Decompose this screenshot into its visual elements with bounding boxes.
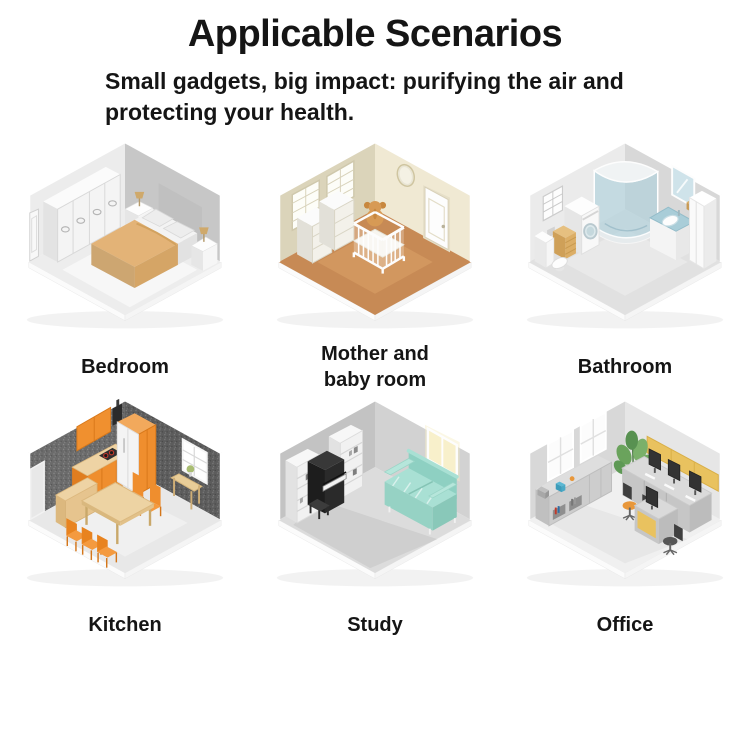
scenario-study: Study	[250, 395, 500, 653]
laundry-basket	[553, 226, 576, 260]
room-label-kitchen: Kitchen	[88, 597, 161, 653]
room-label-study: Study	[347, 597, 403, 653]
plant	[187, 465, 195, 473]
scenario-office: Office	[500, 395, 750, 653]
room-label-bedroom: Bedroom	[81, 339, 169, 395]
study-illustration	[250, 395, 500, 597]
scenario-kitchen: Kitchen	[0, 395, 250, 653]
tall-cabinet	[689, 191, 716, 269]
kitchen-door	[31, 461, 44, 519]
bedroom-illustration	[0, 137, 250, 339]
page-subtitle: Small gadgets, big impact: purifying the…	[105, 66, 650, 129]
scenario-grid: Bedroom	[0, 137, 750, 653]
room-label-mother-baby: Mother and baby room	[300, 339, 450, 395]
kitchen-illustration	[0, 395, 250, 597]
room-label-office: Office	[597, 597, 654, 653]
page-title: Applicable Scenarios	[0, 12, 750, 58]
scenario-mother-baby-room: Mother and baby room	[250, 137, 500, 395]
room-label-bathroom: Bathroom	[578, 339, 672, 395]
bathroom-illustration	[500, 137, 750, 339]
scenario-bathroom: Bathroom	[500, 137, 750, 395]
bedroom-door	[30, 209, 39, 261]
office-illustration	[500, 395, 750, 597]
mother-baby-room-illustration	[250, 137, 500, 339]
scenario-bedroom: Bedroom	[0, 137, 250, 395]
applicable-scenarios-poster: Applicable Scenarios Small gadgets, big …	[0, 0, 750, 750]
dresser	[319, 191, 354, 251]
shower-enclosure	[594, 162, 657, 244]
